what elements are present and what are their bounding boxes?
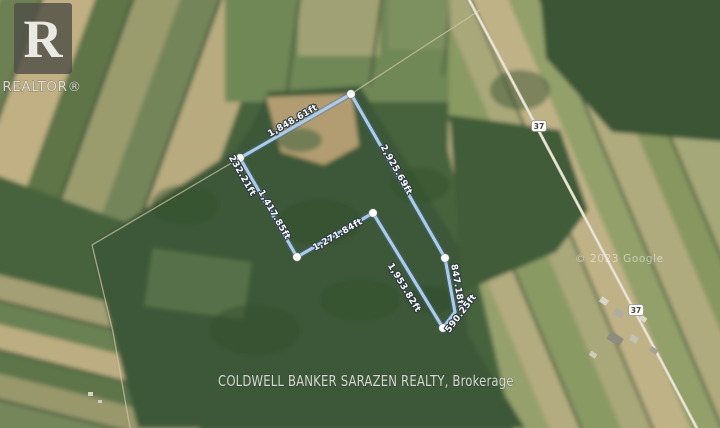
- vertex-dot-north: [347, 90, 355, 98]
- route-shield-south: 37: [629, 305, 644, 316]
- brokerage-text: COLDWELL BANKER SARAZEN REALTY, Brokerag…: [218, 374, 514, 391]
- satellite-background: [0, 0, 720, 428]
- route-shield-north: 37: [532, 121, 547, 132]
- brokerage-watermark: COLDWELL BANKER SARAZEN REALTY, Brokerag…: [218, 374, 514, 391]
- vertex-dot-notch-bottom: [293, 253, 301, 261]
- map-watermark: © 2023 Google: [575, 253, 664, 265]
- vertex-dot-east: [441, 254, 449, 262]
- route-shield-number: 37: [534, 122, 544, 131]
- realtor-logo: R REALTOR®: [2, 3, 81, 95]
- realtor-logo-label: REALTOR®: [2, 79, 81, 95]
- realtor-logo-letter: R: [24, 9, 64, 69]
- route-shield-number: 37: [631, 306, 641, 315]
- listing-aerial-map: 1,848.61ft 2,925.69ft 847.18ft 590.25ft …: [0, 0, 720, 428]
- vertex-dot-notch-top: [369, 209, 377, 217]
